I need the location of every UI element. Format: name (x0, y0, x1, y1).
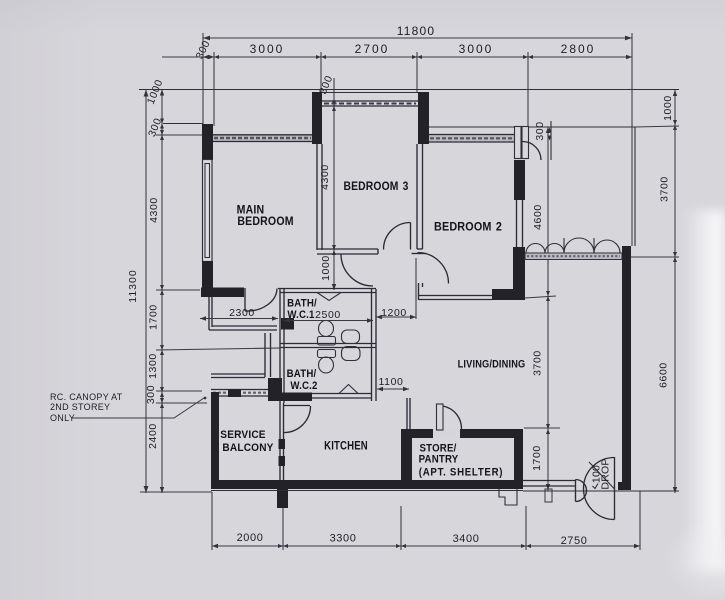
svg-text:1000: 1000 (662, 95, 674, 121)
svg-text:3400: 3400 (453, 533, 480, 545)
svg-text:1700: 1700 (531, 445, 543, 471)
svg-text:W.C.1: W.C.1 (287, 310, 314, 322)
svg-text:BATH/: BATH/ (287, 369, 317, 381)
svg-text:300: 300 (145, 385, 157, 404)
svg-text:BEDROOM 3: BEDROOM 3 (343, 180, 408, 193)
svg-text:DROP: DROP (600, 458, 612, 489)
svg-text:LIVING/DINING: LIVING/DINING (458, 359, 526, 371)
svg-text:2000: 2000 (237, 532, 264, 544)
svg-text:SERVICE: SERVICE (220, 429, 265, 441)
svg-text:BEDROOM: BEDROOM (237, 215, 293, 228)
svg-text:1200: 1200 (381, 307, 407, 319)
svg-text:1300: 1300 (147, 353, 159, 379)
svg-text:6600: 6600 (658, 362, 670, 388)
svg-text:3000: 3000 (250, 42, 285, 56)
svg-text:2ND STOREY: 2ND STOREY (50, 402, 110, 412)
svg-text:(APT. SHELTER): (APT. SHELTER) (419, 467, 503, 479)
svg-text:300: 300 (534, 121, 546, 140)
svg-text:3300: 3300 (330, 533, 357, 545)
svg-text:KITCHEN: KITCHEN (324, 440, 368, 453)
svg-text:BEDROOM 2: BEDROOM 2 (434, 221, 502, 234)
svg-text:1700: 1700 (148, 304, 160, 330)
svg-text:11300: 11300 (127, 269, 139, 302)
svg-text:2300: 2300 (229, 307, 255, 319)
svg-text:STORE/: STORE/ (420, 443, 457, 455)
svg-text:4600: 4600 (532, 204, 544, 230)
svg-text:2750: 2750 (561, 535, 588, 547)
svg-text:RC. CANOPY AT: RC. CANOPY AT (50, 392, 123, 402)
svg-text:3000: 3000 (459, 42, 494, 56)
svg-text:1000: 1000 (320, 255, 332, 281)
svg-text:W.C.2: W.C.2 (290, 381, 317, 393)
svg-text:3700: 3700 (532, 350, 544, 376)
svg-text:PANTRY: PANTRY (419, 454, 459, 466)
svg-text:2400: 2400 (147, 423, 159, 449)
svg-text:4300: 4300 (148, 197, 160, 223)
svg-text:2700: 2700 (355, 42, 390, 56)
svg-text:2500: 2500 (315, 309, 341, 321)
svg-text:BALCONY: BALCONY (222, 442, 273, 454)
svg-text:11800: 11800 (397, 24, 435, 38)
svg-text:4300: 4300 (319, 164, 331, 190)
svg-text:3700: 3700 (659, 176, 671, 202)
svg-text:ONLY: ONLY (50, 413, 75, 423)
svg-text:2800: 2800 (561, 42, 596, 56)
svg-text:1100: 1100 (379, 376, 404, 388)
svg-text:BATH/: BATH/ (287, 298, 317, 310)
